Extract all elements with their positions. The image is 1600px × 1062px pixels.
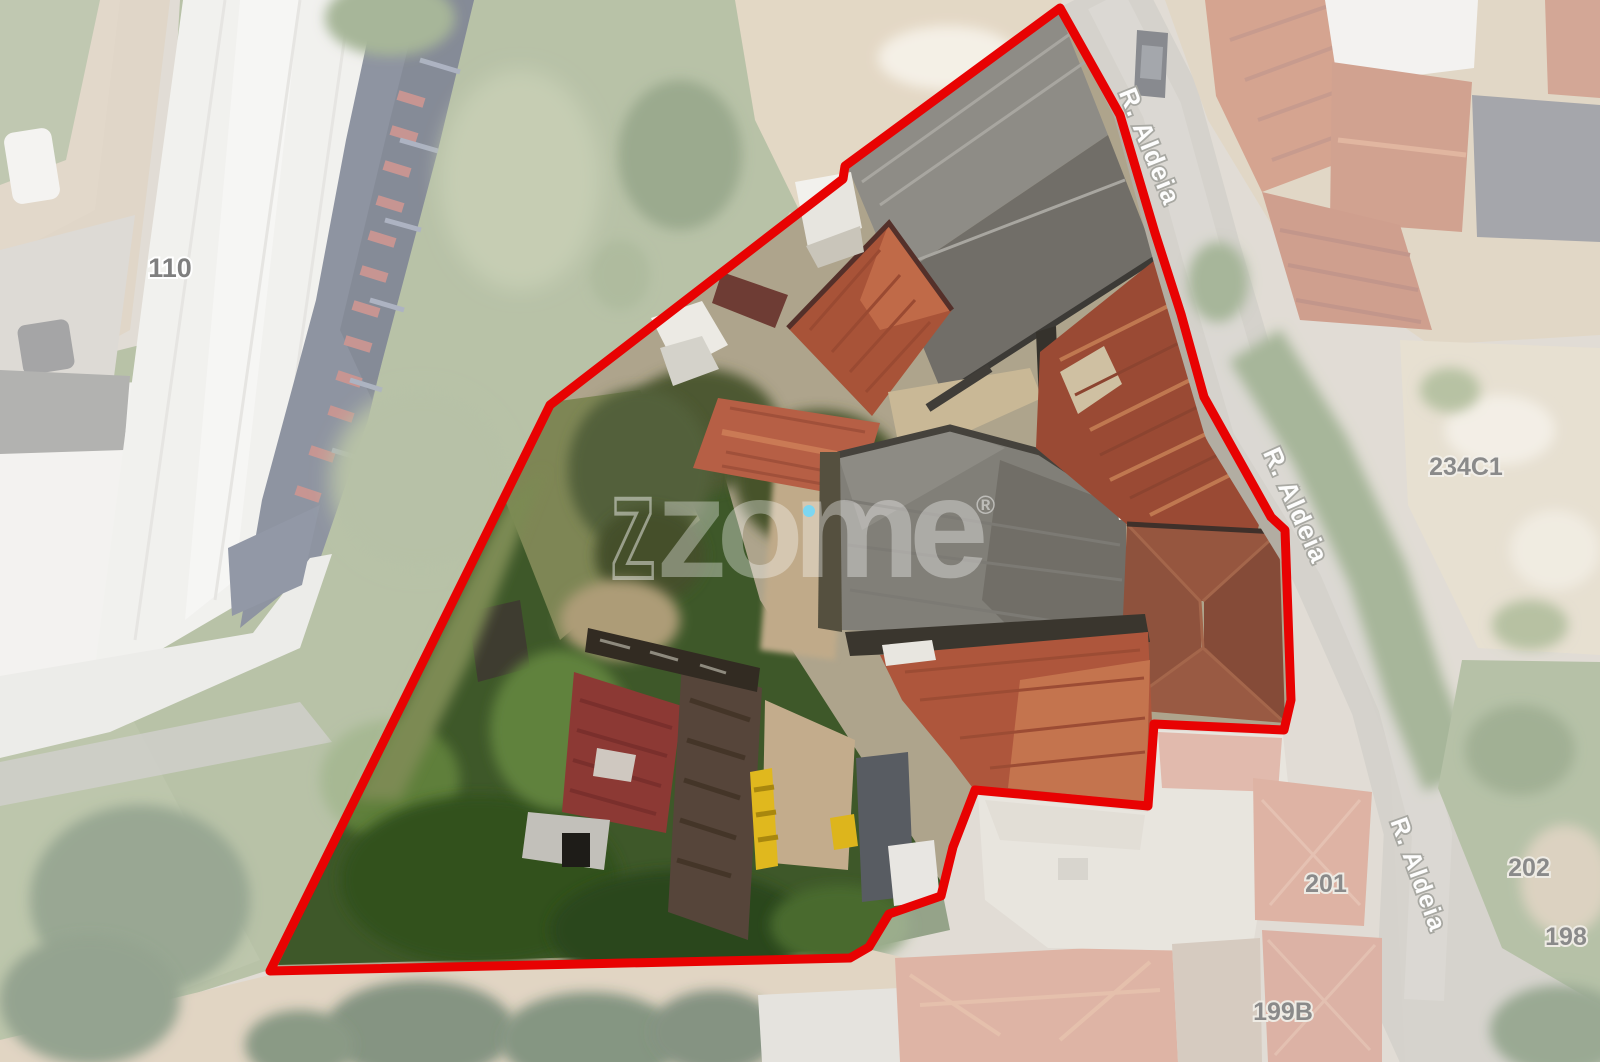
svg-text:202: 202 (1508, 854, 1550, 882)
svg-text:199B: 199B (1253, 998, 1313, 1026)
svg-text:198: 198 (1545, 923, 1587, 951)
svg-text:234C1: 234C1 (1429, 453, 1503, 481)
svg-text:®: ® (976, 490, 995, 520)
svg-text:201: 201 (1305, 870, 1347, 898)
svg-text:zome: zome (656, 449, 984, 608)
svg-text:110: 110 (148, 253, 192, 283)
svg-text:z: z (610, 442, 656, 610)
